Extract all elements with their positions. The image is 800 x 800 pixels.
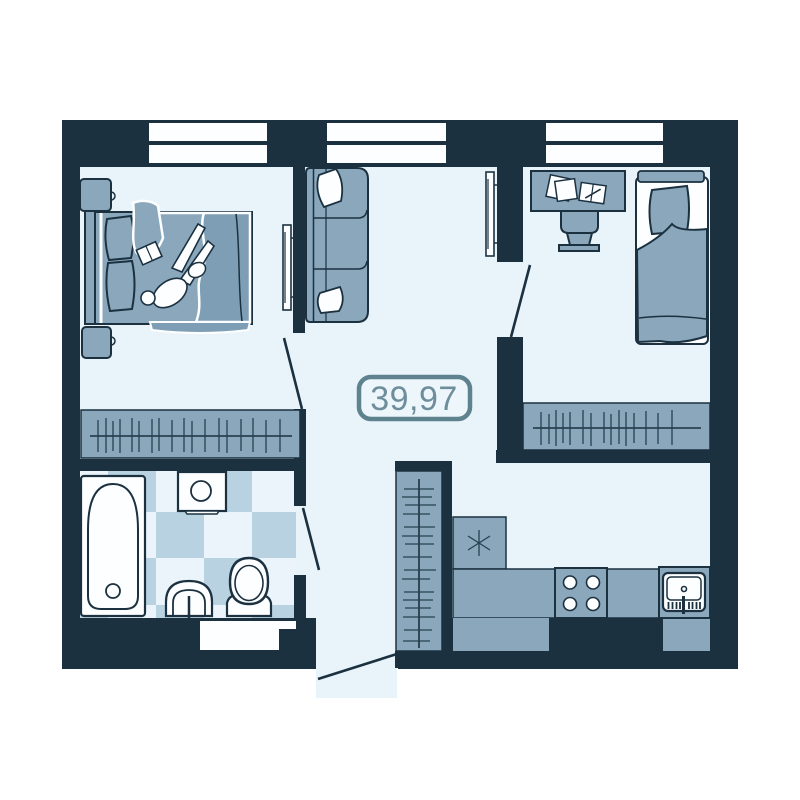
svg-text:39,97: 39,97 <box>370 380 458 418</box>
